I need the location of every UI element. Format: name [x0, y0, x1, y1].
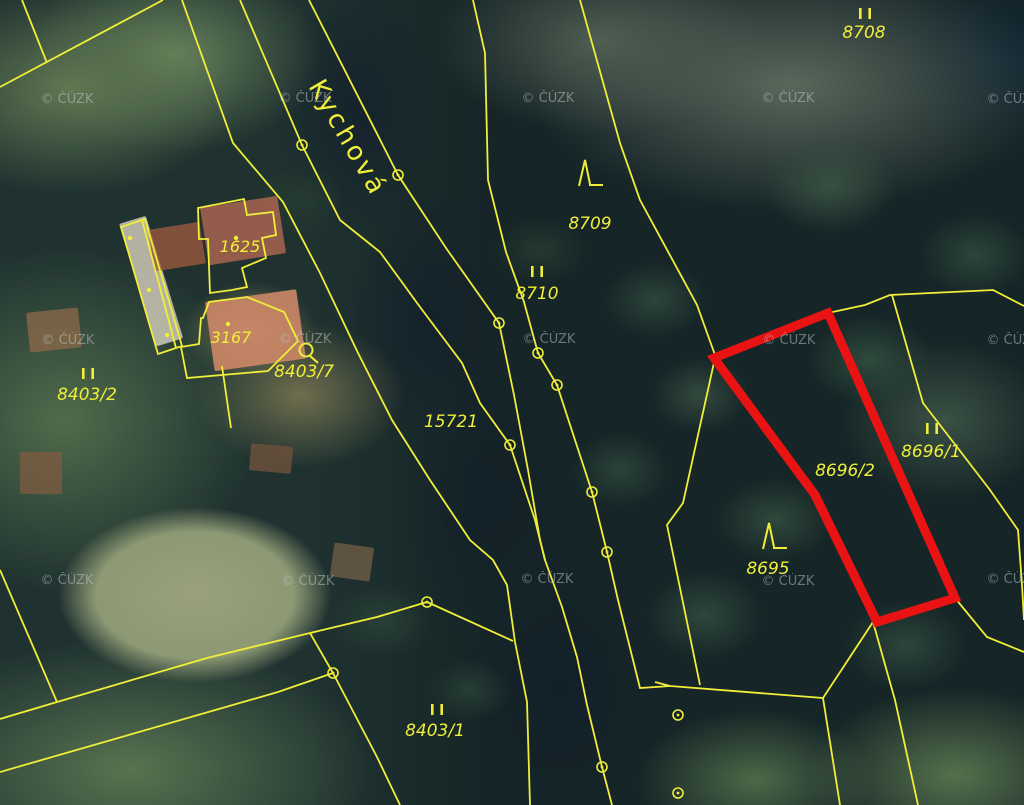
parcel-boundary-line — [310, 633, 400, 805]
parcel-boundary-line — [955, 598, 1024, 652]
parcel-number-label: 8708 — [842, 23, 885, 43]
coniferous-forest-icon — [579, 160, 603, 186]
cadastral-map[interactable]: 870887098710157218696/28696/186958403/28… — [0, 0, 1024, 805]
building-dot — [147, 288, 151, 292]
coniferous-forest-icon — [763, 523, 787, 549]
boundary-point-dot — [332, 672, 335, 675]
parcel-boundary-line — [0, 570, 57, 702]
boundary-point-dot — [601, 766, 604, 769]
building-outline — [142, 220, 176, 348]
landuse-ii-icon — [859, 8, 862, 19]
watermark-text: © ČÚZK — [762, 90, 815, 106]
parcel-number-label: 8710 — [515, 284, 558, 304]
parcel-number-label: 1625 — [220, 237, 261, 256]
watermark-text: © ČÚZK — [41, 572, 94, 588]
cadastre-overlay: 870887098710157218696/28696/186958403/28… — [0, 0, 1024, 805]
parcel-boundary-line — [0, 602, 427, 719]
watermark-text: © ČÚZK — [987, 332, 1024, 348]
parcel-boundary-line — [873, 622, 918, 805]
watermark-text: © ČÚZK — [521, 571, 574, 587]
boundary-point-dot — [498, 322, 501, 325]
parcel-number-label: 8403/7 — [274, 362, 334, 382]
parcel-number-label: 8696/1 — [901, 442, 961, 462]
watermark-text: © ČÚZK — [523, 331, 576, 347]
building-dot — [165, 333, 169, 337]
landuse-ii-icon — [91, 368, 94, 379]
parcel-number-label: 3167 — [211, 328, 253, 347]
landuse-ii-icon — [540, 266, 543, 277]
boundary-point-dot — [556, 384, 559, 387]
landuse-ii-icon — [531, 266, 534, 277]
boundary-point-dot — [509, 444, 512, 447]
building-dot — [128, 236, 132, 240]
watermark-text: © ČÚZK — [42, 332, 95, 348]
watermark-text: © ČÚZK — [282, 573, 335, 589]
parcel-number-label: 8696/2 — [815, 461, 875, 481]
landuse-ii-icon — [935, 423, 938, 434]
parcel-number-label: 8709 — [568, 214, 611, 234]
boundary-point-dot — [677, 792, 680, 795]
parcel-boundary-line — [823, 622, 873, 698]
watermark-text: © ČÚZK — [522, 90, 575, 106]
watermark-text: © ČÚZK — [987, 571, 1024, 587]
landuse-ii-icon — [868, 8, 871, 19]
parcel-boundary-line — [823, 698, 840, 805]
boundary-point-dot — [426, 601, 429, 604]
boundary-point-dot — [606, 551, 609, 554]
watermark-text: © ČÚZK — [763, 332, 816, 348]
parcel-number-label: 8403/2 — [57, 385, 117, 405]
boundary-point-dot — [537, 352, 540, 355]
boundary-point-dot — [591, 491, 594, 494]
parcel-boundary-line — [580, 0, 715, 355]
parcel-boundary-line — [0, 0, 163, 87]
parcel-boundary-line — [182, 0, 530, 805]
parcel-number-label: 8403/1 — [405, 721, 465, 741]
watermark-text: © ČÚZK — [279, 331, 332, 347]
watermark-text: © ČÚZK — [987, 91, 1024, 107]
boundary-point-dot — [397, 174, 400, 177]
parcel-number-label: 15721 — [424, 412, 478, 432]
watermark-text: © ČÚZK — [279, 90, 332, 106]
landuse-ii-icon — [926, 423, 929, 434]
parcel-boundary-line — [240, 0, 612, 805]
watermark-text: © ČÚZK — [41, 91, 94, 107]
landuse-ii-icon — [82, 368, 85, 379]
boundary-point-dot — [677, 714, 680, 717]
watermark-text: © ČÚZK — [762, 573, 815, 589]
parcel-boundary-line — [427, 602, 513, 641]
landuse-ii-icon — [440, 704, 443, 715]
landuse-ii-icon — [431, 704, 434, 715]
parcel-boundary-line — [655, 682, 823, 698]
parcel-boundary-line — [828, 290, 1024, 313]
parcel-boundary-line — [22, 0, 47, 63]
parcel-boundary-line — [667, 358, 715, 685]
boundary-point-dot — [301, 144, 304, 147]
building-dot — [226, 322, 230, 326]
